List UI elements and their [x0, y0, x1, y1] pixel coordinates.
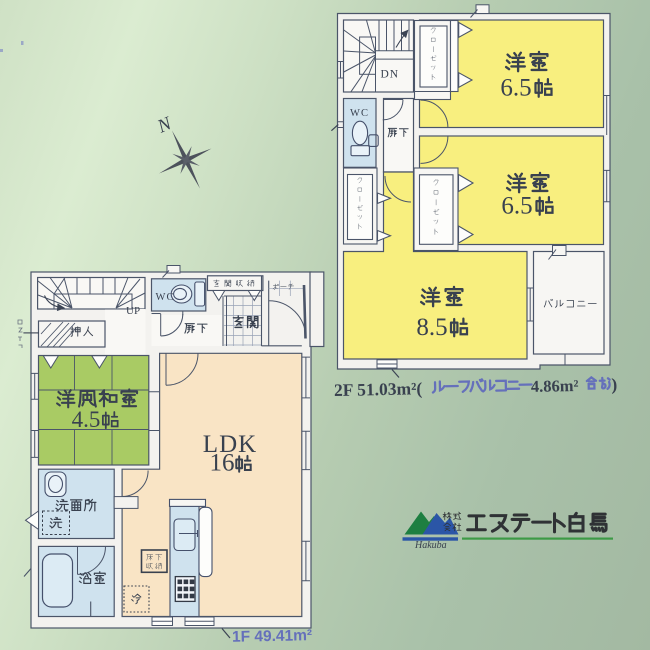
svg-text:8.5: 8.5: [416, 314, 447, 341]
svg-text:6.5: 6.5: [501, 193, 532, 220]
svg-text:16: 16: [210, 450, 235, 477]
svg-text:2F 51.03m²(: 2F 51.03m²(: [334, 378, 423, 400]
svg-text:DN: DN: [381, 69, 400, 81]
svg-text:WC: WC: [156, 292, 175, 303]
svg-text:4.5: 4.5: [72, 407, 101, 432]
svg-text:1F 49.41m²: 1F 49.41m²: [232, 627, 312, 646]
svg-text:WC: WC: [350, 108, 369, 119]
svg-text:UP: UP: [126, 305, 140, 317]
svg-text:4.86m²: 4.86m²: [531, 376, 579, 396]
svg-text:6.5: 6.5: [500, 75, 531, 102]
svg-text:): ): [611, 374, 617, 394]
svg-text:Hakuba: Hakuba: [414, 540, 447, 551]
svg-text:N: N: [154, 113, 176, 138]
